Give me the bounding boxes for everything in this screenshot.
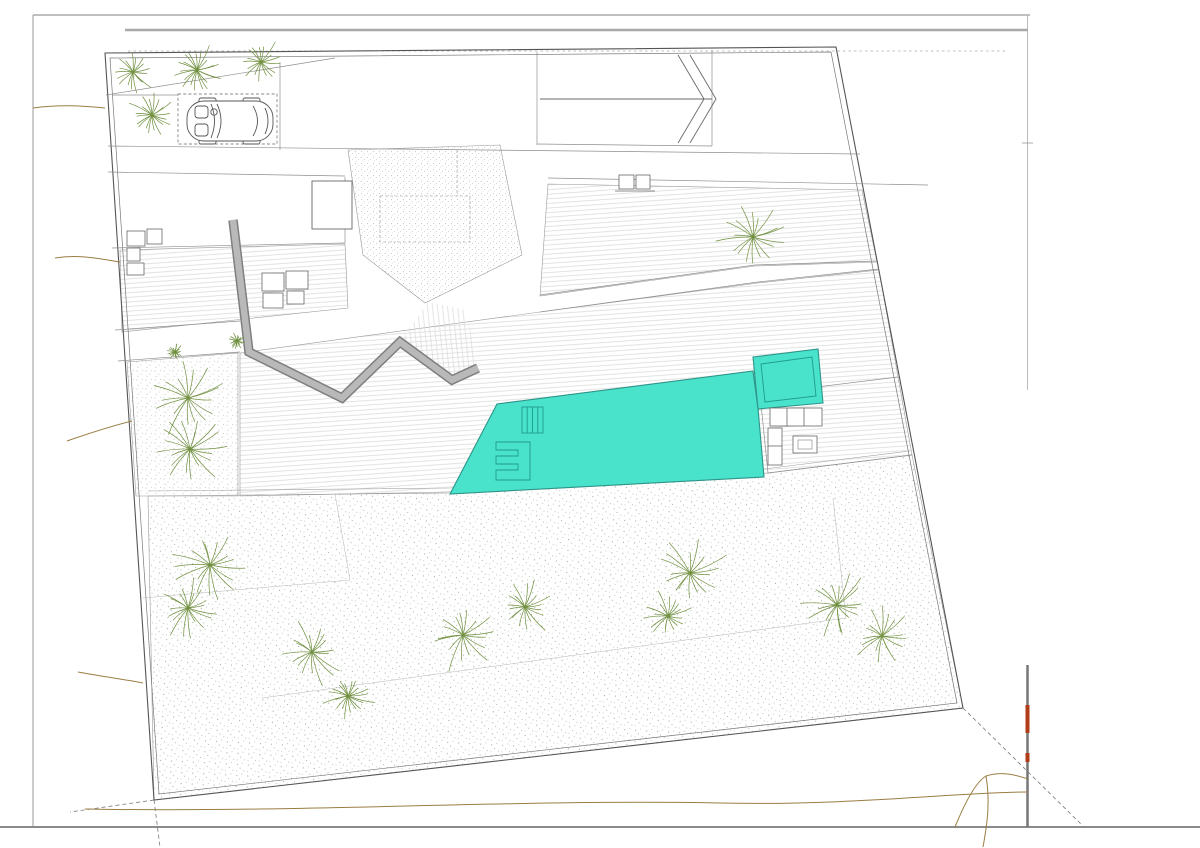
palm-tree-icon [129, 93, 171, 135]
roof-gravel [348, 145, 522, 303]
palm-tree-icon [243, 42, 280, 82]
car-icon [187, 98, 273, 144]
road [125, 30, 1028, 51]
ramp [540, 55, 716, 143]
garage [178, 94, 277, 144]
site-plan-page [0, 0, 1200, 848]
site-plan-canvas [0, 0, 1200, 848]
palm-tree-icon [115, 52, 151, 93]
